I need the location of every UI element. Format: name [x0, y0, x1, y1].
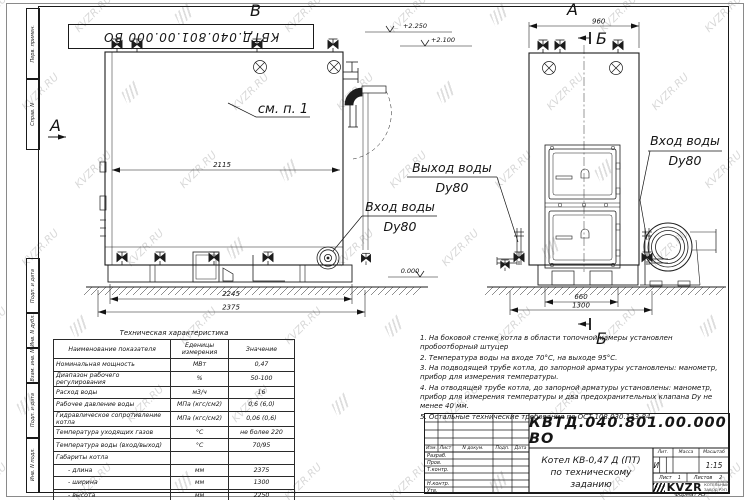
product-title: Котел КВ-0,47 Д (ПТ) по техническому зад…	[529, 448, 653, 493]
view-letter-a-side: А	[49, 116, 61, 135]
lit-value: И	[653, 457, 660, 473]
spec-row: Температура уходящих газов°Сне более 220	[54, 426, 295, 439]
outlet-label-1: Выход воды	[412, 160, 492, 175]
signature-row-label: Н.контр.	[425, 480, 455, 487]
ground-hatch-right	[485, 287, 724, 295]
detail-note: см. п. 1	[258, 102, 308, 117]
sheets-value: 2	[719, 475, 722, 481]
spec-cell: МПа (кгс/см2)	[171, 411, 229, 426]
revision-col-header: Подп.	[493, 445, 512, 452]
scale-value: 1:15	[699, 457, 729, 473]
signature-row-label: Утв.	[425, 487, 455, 494]
door-bolts	[550, 146, 615, 267]
spec-cell: Габариты котла	[54, 451, 171, 464]
technical-notes: 1. На боковой стенке котла в области топ…	[420, 334, 732, 423]
product-title-line2: по техническому заданию	[529, 467, 653, 491]
sheet-value: 1	[678, 475, 681, 481]
view-letter-v: В	[250, 1, 261, 20]
spec-cell: Температура уходящих газов	[54, 426, 171, 439]
spec-cell: Номинальная мощность	[54, 359, 171, 372]
dim-2375: 2375	[222, 304, 240, 312]
technical-note: 3. На подводящей трубе котла, до запорно…	[420, 364, 732, 382]
inlet-label-front-1: Вход воды	[650, 133, 720, 148]
spec-cell: Расход воды	[54, 386, 171, 399]
spec-cell: Диапазон рабочего регулирования	[54, 371, 171, 386]
spec-cell: 1300	[228, 477, 294, 490]
spec-col-header: Наименование показателя	[54, 340, 171, 359]
spec-row: Рабочее давление водыМПа (кгс/см2)0,6 (6…	[54, 399, 295, 412]
spec-cell: не более 220	[228, 426, 294, 439]
spec-table-block: Техническая характеристика Наименование …	[53, 329, 295, 500]
section-letter-b-top: Б	[596, 29, 607, 48]
spec-col-header: Еденицы измерения	[171, 340, 229, 359]
spec-cell: МПа (кгс/см2)	[171, 399, 229, 412]
inlet-label-front-2: Dу80	[669, 153, 702, 168]
technical-note: 1. На боковой стенке котла в области топ…	[420, 334, 732, 352]
spec-cell: 50-100	[228, 371, 294, 386]
dim-2245: 2245	[222, 290, 240, 298]
spec-cell: мм	[171, 464, 229, 477]
mass-label: Масса	[673, 448, 699, 457]
format-label: Формат А3	[648, 492, 732, 498]
spec-row: Диапазон рабочего регулирования%50-100	[54, 371, 295, 386]
inlet-flange	[317, 247, 339, 269]
lit-label: Лит.	[653, 448, 673, 457]
sheet-label: Лист	[659, 475, 672, 481]
spec-cell: 16	[228, 386, 294, 399]
revision-col-header: N докум.	[453, 445, 493, 452]
spec-cell: мм	[171, 489, 229, 500]
spec-cell: - высота	[54, 489, 171, 500]
spec-cell: 70/95	[228, 439, 294, 452]
spec-row: - высотамм2250	[54, 489, 295, 500]
elevation-mid: +2.100	[431, 36, 455, 44]
spec-cell: 2250	[228, 489, 294, 500]
ground-hatch-left	[84, 287, 421, 295]
spec-cell	[171, 451, 229, 464]
furnace-doors	[545, 145, 620, 268]
spec-cell: - ширина	[54, 477, 171, 490]
spec-row: - длинамм2375	[54, 464, 295, 477]
doc-number: КВТД.040.801.00.000 ВО	[529, 414, 729, 448]
title-block: КВТД.040.801.00.000 ВО Котел КВ-0,47 Д (…	[424, 413, 730, 494]
signature-row-label: Т.контр.	[425, 466, 455, 473]
spec-row: Номинальная мощностьМВт0,47	[54, 359, 295, 372]
drawing-sheet: KVZR.RUKVZR.RUKVZR.RUKVZR.RUKVZR.RUKVZR.…	[0, 0, 750, 500]
signature-row-label: Разраб.	[425, 452, 455, 459]
spec-cell: 0,06 (0,6)	[228, 411, 294, 426]
technical-note: 4. На отводящей трубе котла, до запорной…	[420, 384, 732, 411]
revision-col-header: Изм.	[425, 445, 438, 452]
elevation-zero: 0.000	[401, 267, 420, 275]
spec-cell: мм	[171, 477, 229, 490]
dim-660: 660	[574, 293, 588, 301]
spec-table-title: Техническая характеристика	[53, 329, 295, 337]
product-title-line1: Котел КВ-0,47 Д (ПТ)	[529, 455, 653, 467]
dim-1300: 1300	[572, 302, 590, 310]
spec-cell: Гидравлическое сопротивление котла	[54, 411, 171, 426]
dim-2115: 2115	[213, 161, 231, 169]
spec-table-head: Наименование показателяЕденицы измерения…	[54, 340, 295, 359]
spec-row: Расход водым3/ч16	[54, 386, 295, 399]
spec-cell: Температура воды (вход/выход)	[54, 439, 171, 452]
spec-cell: м3/ч	[171, 386, 229, 399]
scale-label: Масштаб	[699, 448, 729, 457]
spec-cell: °С	[171, 426, 229, 439]
outlet-label-2: Dу80	[436, 180, 469, 195]
dim-960: 960	[592, 18, 606, 26]
company-name: КОТЕЛЬНЫЙ ЗАВОД РЭП	[704, 483, 729, 492]
spec-row: Габариты котла	[54, 451, 295, 464]
spec-row: - ширинамм1300	[54, 477, 295, 490]
spec-cell: 0,47	[228, 359, 294, 372]
side-skid	[108, 252, 352, 282]
spec-cell	[228, 451, 294, 464]
side-view	[84, 39, 428, 295]
elevation-top: +2.250	[403, 22, 427, 30]
technical-note: 2. Температура воды на входе 70°С, на вы…	[420, 354, 732, 363]
spec-cell: Рабочее давление воды	[54, 399, 171, 412]
revision-col-header: Лист	[438, 445, 453, 452]
revision-col-header: Дата	[512, 445, 529, 452]
spec-row: Гидравлическое сопротивление котлаМПа (к…	[54, 411, 295, 426]
inlet-label-side-1: Вход воды	[365, 199, 435, 214]
signature-row-label: Пров.	[425, 459, 455, 466]
spec-cell: 2375	[228, 464, 294, 477]
spec-table-body: Номинальная мощностьМВт0,47Диапазон рабо…	[54, 359, 295, 500]
spec-cell: %	[171, 371, 229, 386]
spec-cell: - длина	[54, 464, 171, 477]
spec-row: Температура воды (вход/выход)°С70/95	[54, 439, 295, 452]
spec-cell: МВт	[171, 359, 229, 372]
view-letter-a-front: А	[566, 0, 578, 19]
kvzr-logo-icon	[653, 483, 665, 492]
spec-table: Наименование показателяЕденицы измерения…	[53, 339, 295, 500]
spec-cell: 0,6 (6,0)	[228, 399, 294, 412]
spec-col-header: Значение	[228, 340, 294, 359]
sheets-label: Листов	[694, 475, 713, 481]
inlet-label-side-2: Dу80	[384, 219, 417, 234]
spec-cell: °С	[171, 439, 229, 452]
